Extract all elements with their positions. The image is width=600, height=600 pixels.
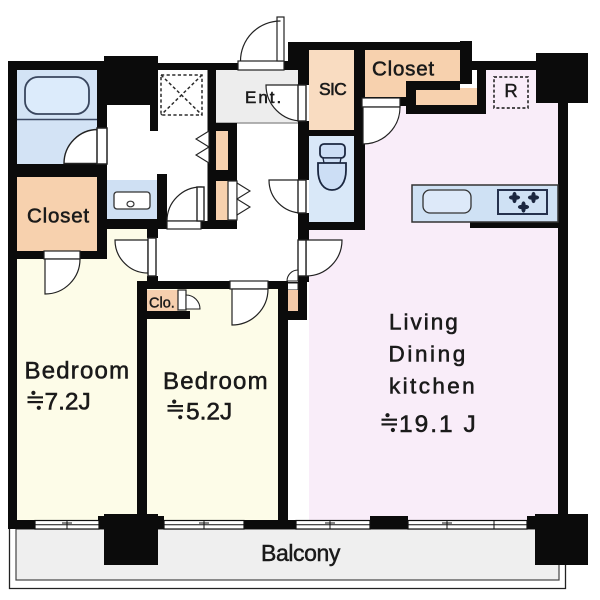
svg-text:Closet: Closet (372, 58, 435, 81)
svg-text:Ent.: Ent. (245, 88, 283, 107)
svg-text:7.2J: 7.2J (45, 389, 91, 416)
svg-text:19.1 J: 19.1 J (399, 411, 478, 438)
svg-text:Bedroom: Bedroom (163, 368, 269, 395)
svg-text:5.2J: 5.2J (186, 399, 232, 426)
svg-text:kitchen: kitchen (389, 374, 477, 399)
svg-text:Clo.: Clo. (149, 296, 175, 312)
svg-text:Bedroom: Bedroom (25, 357, 131, 384)
svg-text:Balcony: Balcony (261, 540, 341, 566)
svg-text:SIC: SIC (319, 79, 346, 99)
svg-text:Closet: Closet (27, 205, 90, 228)
svg-text:R: R (504, 80, 517, 101)
svg-text:Dining: Dining (389, 342, 468, 367)
svg-text:Living: Living (389, 310, 460, 335)
